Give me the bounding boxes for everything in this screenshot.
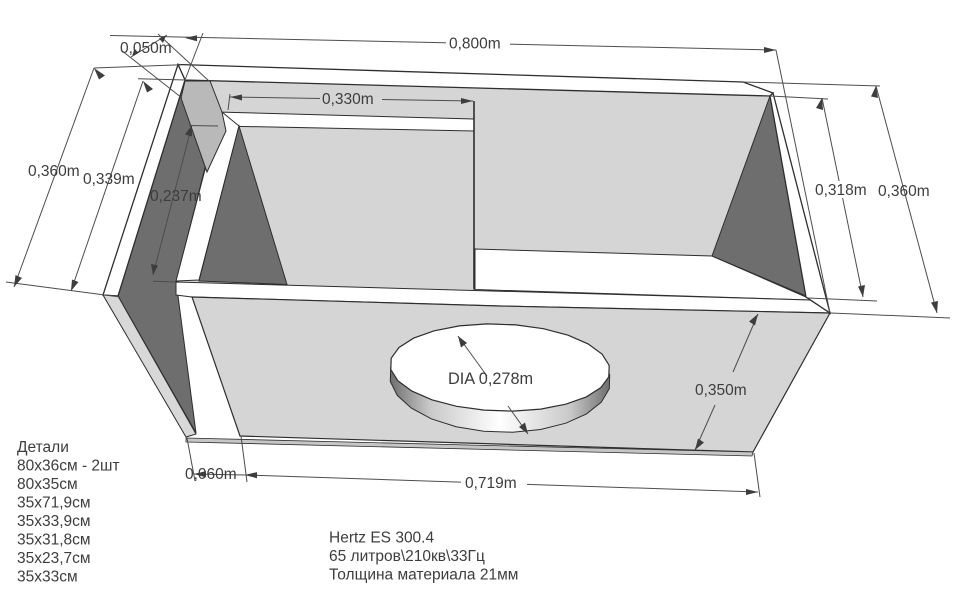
svg-text:35х33см: 35х33см [17,569,78,586]
svg-text:35х31,8см: 35х31,8см [17,532,91,549]
svg-text:0,050m: 0,050m [120,40,172,57]
svg-text:65 литров\210кв\33Гц: 65 литров\210кв\33Гц [329,548,485,565]
svg-text:0,330m: 0,330m [322,91,374,108]
svg-text:0,350m: 0,350m [695,382,747,399]
svg-text:35х33,9см: 35х33,9см [17,513,91,530]
svg-text:0,237m: 0,237m [150,188,202,205]
svg-text:0,360m: 0,360m [878,183,930,200]
svg-text:Hertz ES 300.4: Hertz ES 300.4 [329,530,434,547]
svg-text:0,060m: 0,060m [185,466,237,483]
svg-text:35х71,9см: 35х71,9см [17,495,91,512]
svg-text:35х23,7см: 35х23,7см [17,550,91,567]
svg-text:80х36см - 2шт: 80х36см - 2шт [17,458,120,475]
svg-text:0,800m: 0,800m [449,36,501,53]
svg-text:Толщина материала 21мм: Толщина материала 21мм [329,567,518,584]
svg-text:Детали: Детали [17,439,69,456]
svg-text:0,719m: 0,719m [465,475,517,492]
svg-text:0,339m: 0,339m [83,171,135,188]
svg-text:0,318m: 0,318m [815,182,867,199]
svg-text:0,360m: 0,360m [28,163,80,180]
svg-text:DIA 0,278m: DIA 0,278m [448,370,533,388]
svg-text:80х35см: 80х35см [17,476,78,493]
